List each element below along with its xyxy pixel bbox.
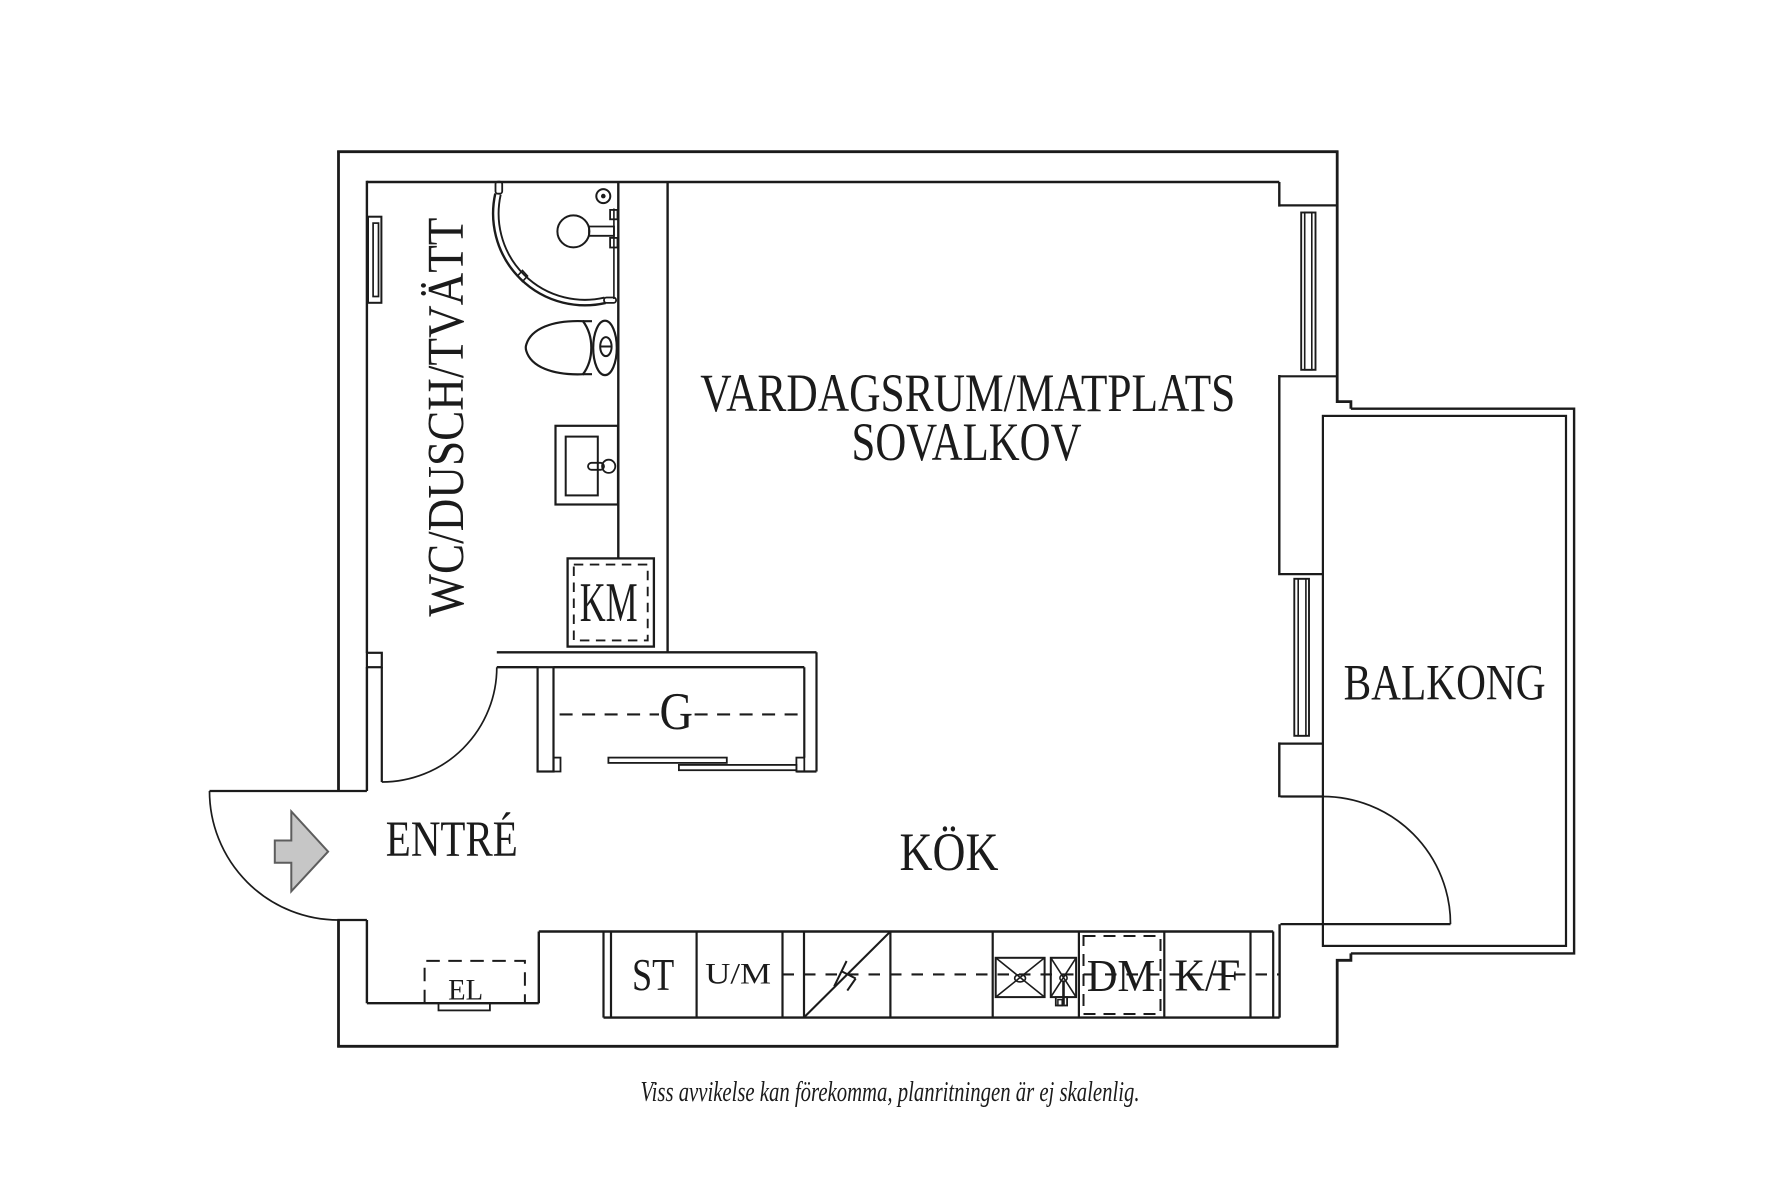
svg-text:Viss avvikelse kan förekomma,: Viss avvikelse kan förekomma, planritnin… — [641, 1077, 1140, 1108]
svg-text:KÖK: KÖK — [900, 822, 999, 882]
svg-text:DM: DM — [1087, 950, 1156, 1001]
svg-text:BALKONG: BALKONG — [1344, 655, 1546, 711]
svg-text:SOVALKOV: SOVALKOV — [852, 412, 1082, 472]
svg-text:K/F: K/F — [1174, 949, 1240, 1000]
svg-text:KM: KM — [580, 572, 638, 634]
svg-text:ENTRÉ: ENTRÉ — [386, 812, 518, 868]
svg-text:G: G — [660, 683, 694, 741]
svg-text:WC/DUSCH/TVÄTT: WC/DUSCH/TVÄTT — [418, 218, 475, 617]
svg-text:ST: ST — [632, 950, 674, 1000]
svg-text:EL: EL — [448, 973, 483, 1006]
svg-text:U/M: U/M — [705, 958, 771, 991]
